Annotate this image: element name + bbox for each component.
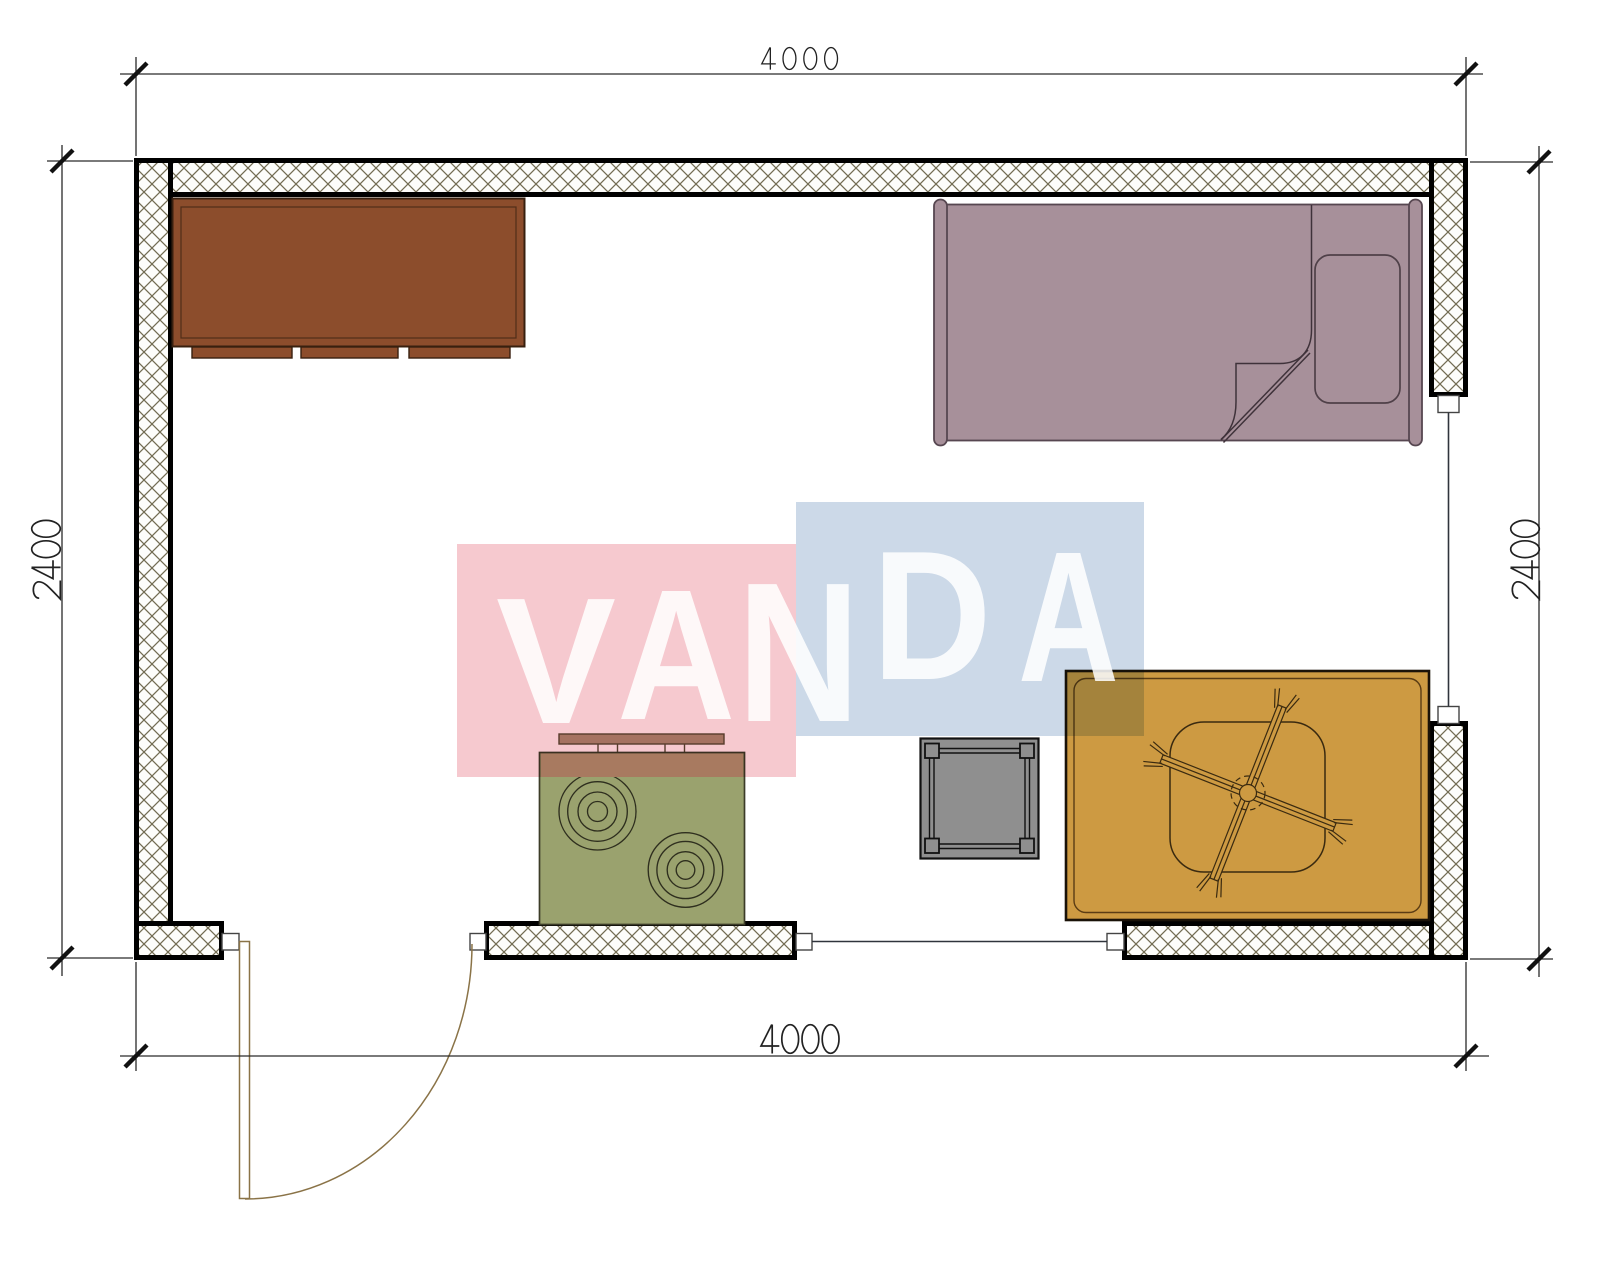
svg-text:V: V [496,561,616,762]
svg-text:D: D [872,514,992,719]
svg-text:A: A [617,551,735,759]
svg-text:A: A [1018,513,1119,721]
svg-text:N: N [737,542,860,764]
